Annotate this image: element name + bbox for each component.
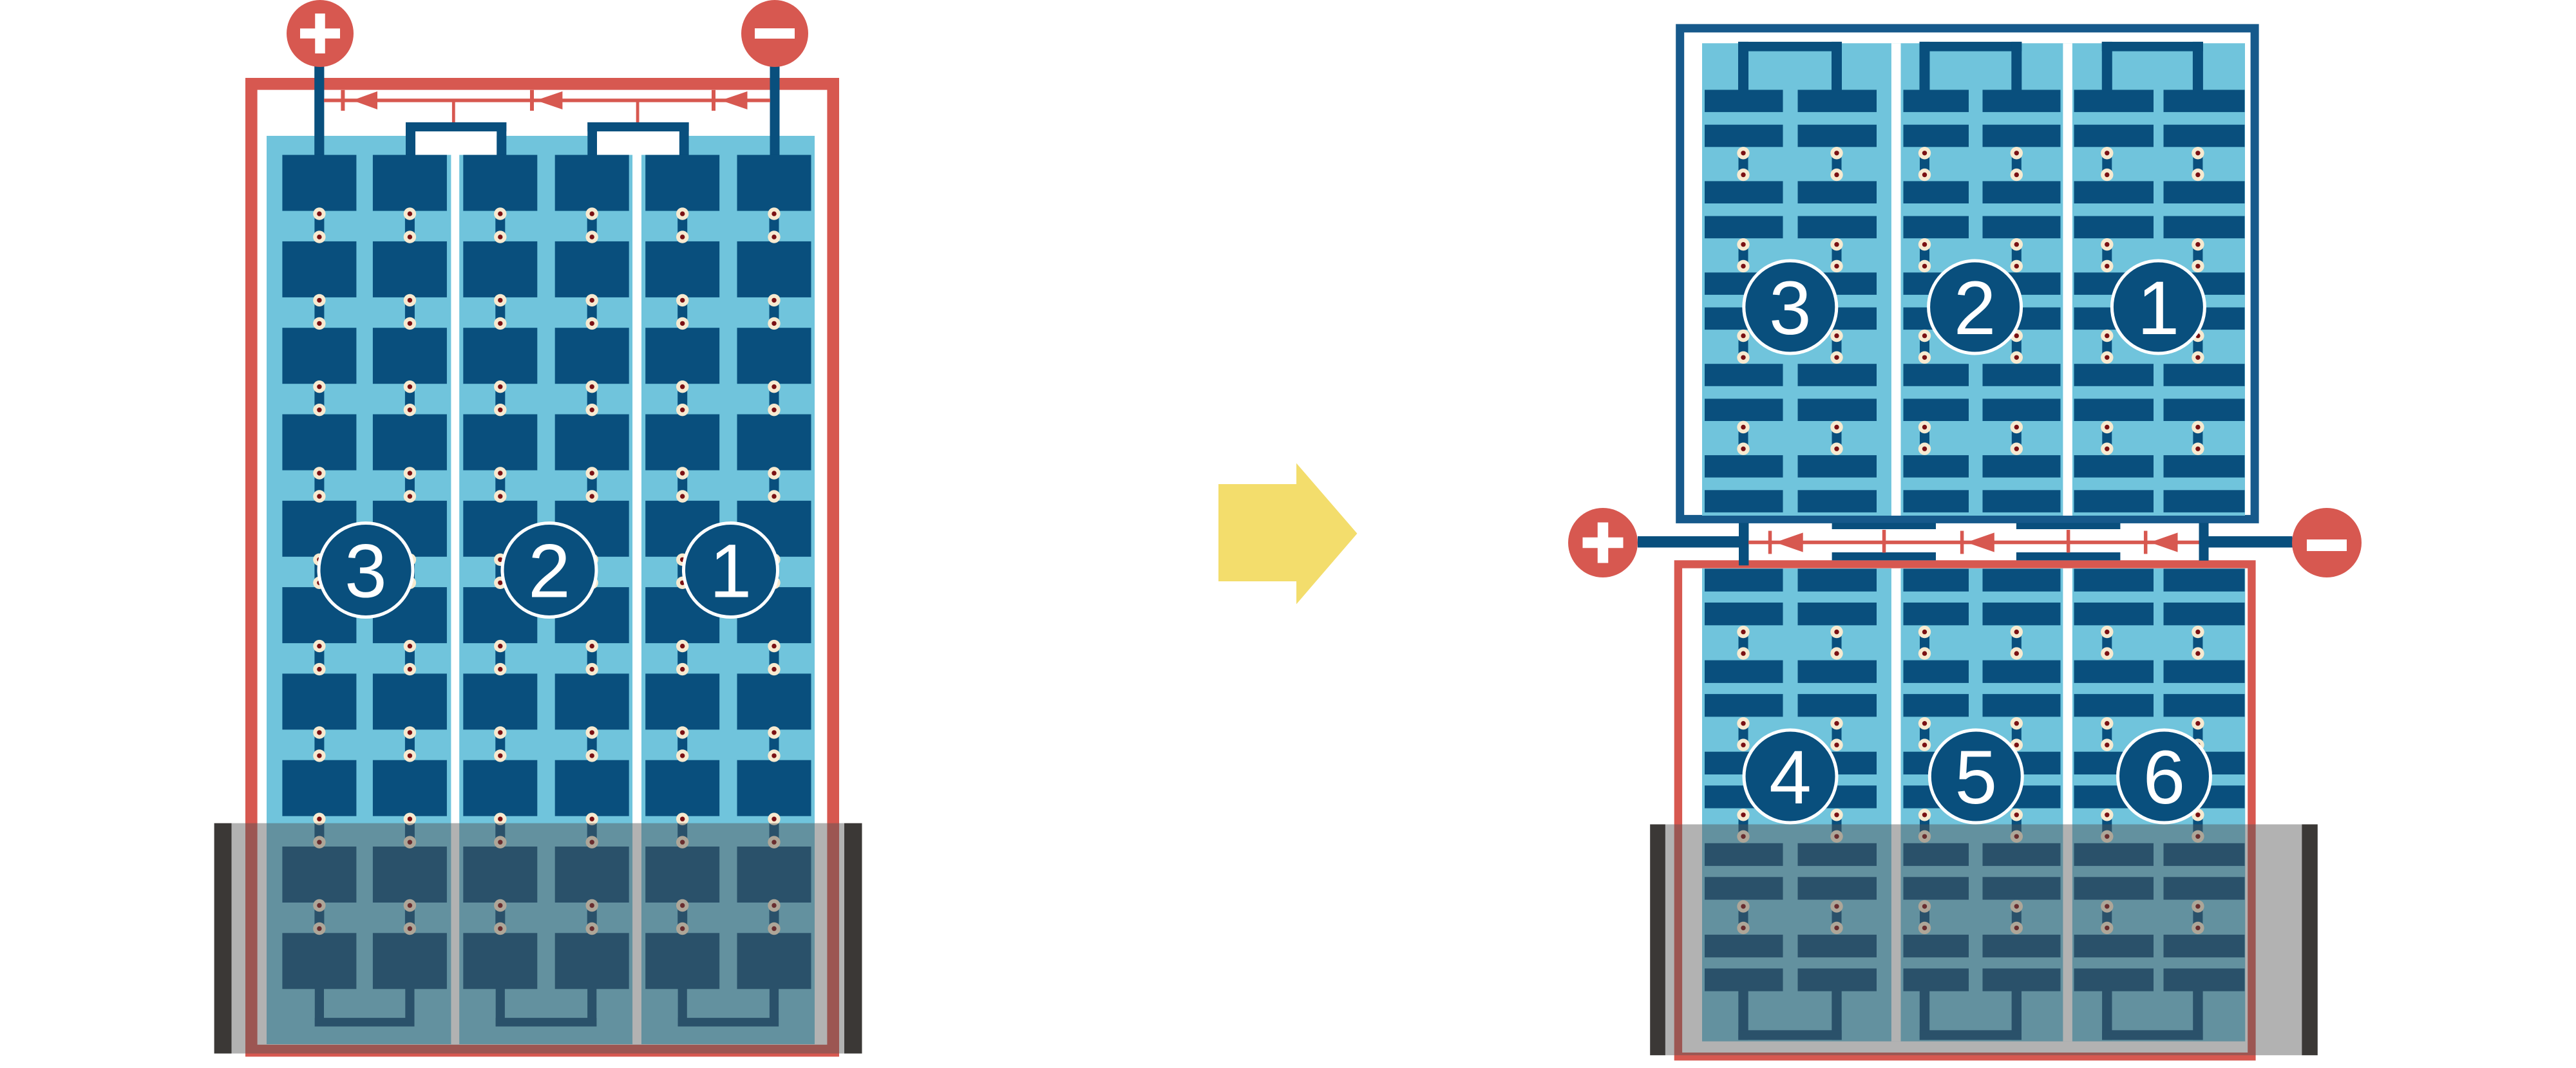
svg-text:1: 1: [2137, 266, 2180, 351]
svg-text:1: 1: [710, 529, 752, 614]
svg-text:2: 2: [1954, 266, 1996, 351]
svg-text:6: 6: [2143, 735, 2186, 820]
svg-text:2: 2: [528, 529, 571, 614]
svg-text:4: 4: [1769, 735, 1812, 820]
svg-text:3: 3: [1769, 266, 1812, 351]
svg-text:3: 3: [345, 529, 387, 614]
svg-text:5: 5: [1955, 735, 1997, 820]
